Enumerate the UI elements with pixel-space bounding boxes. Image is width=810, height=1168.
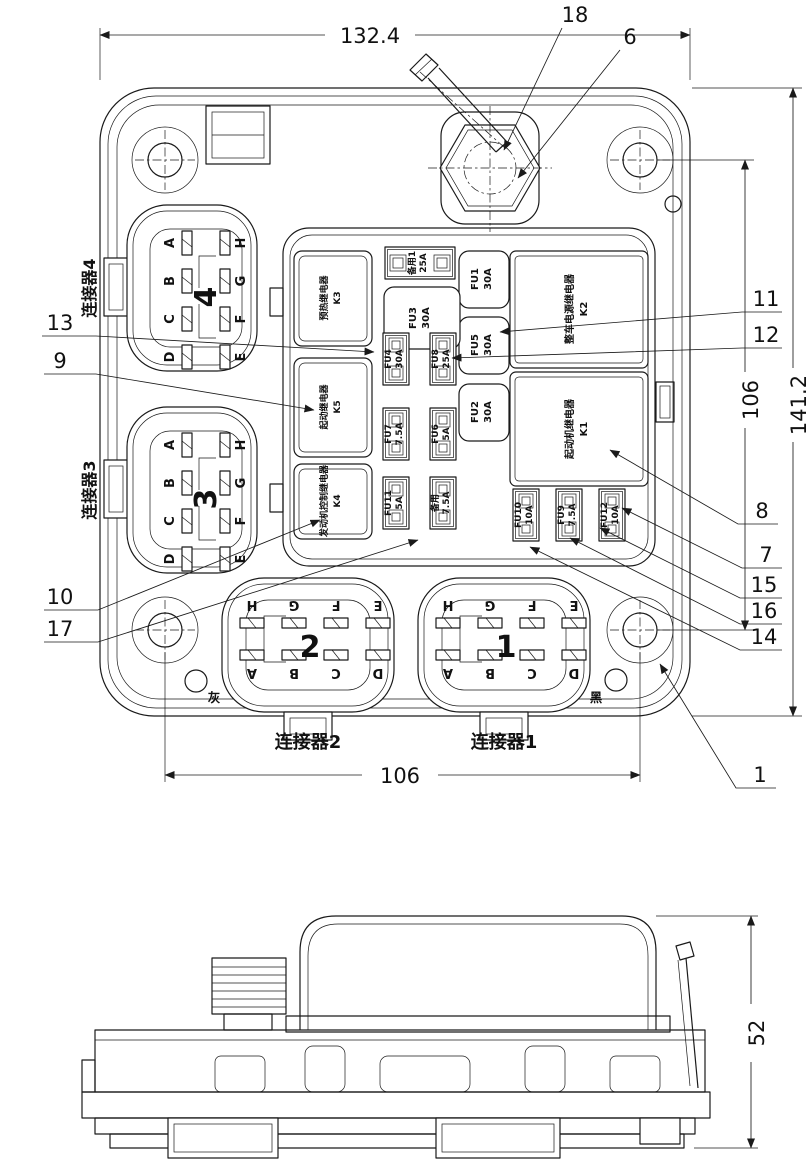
fuse-rating: 5A bbox=[395, 496, 405, 509]
pin-label: B bbox=[485, 665, 495, 680]
callout-11: 11 bbox=[753, 287, 780, 311]
fuse-fu9: FU9 7.5A bbox=[556, 489, 582, 541]
body-band bbox=[82, 1030, 705, 1092]
relay-k5: 起动继电器 K5 bbox=[294, 358, 372, 457]
pin-label: C bbox=[331, 665, 341, 680]
fuse-id: FU11 bbox=[384, 490, 394, 516]
callout-7: 7 bbox=[759, 543, 772, 567]
ear-hole bbox=[185, 670, 207, 692]
relay-k1: 起动机继电器 K1 bbox=[510, 372, 648, 486]
relay-name: 发动机控制继电器 bbox=[318, 464, 330, 538]
vent-block bbox=[206, 106, 270, 164]
fuse-rating: 10A bbox=[611, 505, 621, 525]
connector-label: 连接器3 bbox=[80, 460, 99, 519]
callout-1: 1 bbox=[753, 763, 766, 787]
pin-label: C bbox=[163, 516, 178, 526]
fuse-rating: 30A bbox=[483, 268, 494, 290]
pin-label: H bbox=[234, 238, 249, 249]
color-mark: 黑 bbox=[590, 690, 603, 705]
fuse-fu7: FU7 7.5A bbox=[383, 408, 409, 460]
connector-number: 1 bbox=[496, 630, 517, 665]
fuse-fu10: FU10 10A bbox=[513, 489, 539, 541]
fuse-id: FU12 bbox=[600, 502, 610, 528]
relay-name: 预热继电器 bbox=[318, 275, 330, 321]
relay-k2: 整车电源继电器 K2 bbox=[510, 251, 648, 368]
pin-label: A bbox=[163, 440, 178, 450]
callout-18: 18 bbox=[562, 3, 589, 27]
fuse-rating: 7.5A bbox=[442, 492, 452, 515]
top-view: 预热继电器 K3 起动继电器 K5 发动机控制继电器 K4 整车电源继电器 K2 bbox=[42, 3, 810, 788]
drawing-canvas: 预热继电器 K3 起动继电器 K5 发动机控制继电器 K4 整车电源继电器 K2 bbox=[0, 0, 810, 1168]
connector-1: H G F E A B C D 1 连接器1 黑 bbox=[418, 578, 603, 753]
pin-label: G bbox=[485, 597, 496, 612]
connector-label: 连接器4 bbox=[80, 258, 99, 317]
relay-name: 起动机继电器 bbox=[563, 398, 576, 460]
fuse-id: FU7 bbox=[384, 424, 394, 444]
fuse-fu6: FU6 5A bbox=[430, 408, 456, 460]
fuse-rating: 30A bbox=[483, 401, 494, 423]
fuse-id: FU9 bbox=[557, 505, 567, 525]
relay-k3: 预热继电器 K3 bbox=[294, 251, 372, 346]
fuse-fu12: FU12 10A bbox=[599, 489, 625, 541]
pin-label: F bbox=[528, 597, 537, 612]
fuse-rating: 10A bbox=[525, 505, 535, 525]
pin-label: A bbox=[443, 665, 453, 680]
dim-right-pitch: 106 bbox=[739, 380, 763, 420]
fuse-rating: 30A bbox=[395, 349, 405, 369]
pin-label: D bbox=[163, 351, 178, 362]
fin-bracket bbox=[212, 958, 286, 1030]
callout-13: 13 bbox=[47, 311, 74, 335]
relay-name: 整车电源继电器 bbox=[563, 273, 576, 345]
callout-8: 8 bbox=[755, 499, 768, 523]
pin-label: B bbox=[163, 478, 178, 488]
dim-top-width: 132.4 bbox=[340, 24, 400, 48]
relay-id: K4 bbox=[333, 494, 343, 507]
side-tab-inner bbox=[660, 386, 670, 418]
connector-number: 2 bbox=[300, 630, 321, 665]
pin-label: H bbox=[443, 597, 454, 612]
side-tab bbox=[656, 382, 674, 422]
callout-17: 17 bbox=[47, 617, 74, 641]
fuse-id: 备用 bbox=[429, 494, 441, 513]
relay-id: K5 bbox=[333, 400, 343, 413]
connector-2: H G F E A B C D 2 连接器2 灰 bbox=[208, 578, 394, 753]
fuse-id: FU1 bbox=[470, 268, 481, 290]
dim-side-height: 52 bbox=[656, 916, 769, 1148]
fuse-id: FU5 bbox=[470, 334, 481, 356]
pin-label: G bbox=[234, 478, 249, 489]
connector-label: 连接器1 bbox=[471, 731, 538, 753]
callout-9: 9 bbox=[53, 349, 66, 373]
pin-label: H bbox=[247, 597, 258, 612]
relay-id: K1 bbox=[579, 422, 590, 437]
pin-label: B bbox=[163, 276, 178, 286]
pin-label: C bbox=[163, 314, 178, 324]
latch bbox=[676, 942, 698, 1088]
callout-6: 6 bbox=[623, 25, 636, 49]
dim-side-height-text: 52 bbox=[745, 1020, 769, 1047]
connector-number: 4 bbox=[189, 287, 224, 308]
callout-14: 14 bbox=[751, 625, 778, 649]
fuse-fu1: FU1 30A bbox=[459, 251, 509, 308]
pin-label: C bbox=[527, 665, 537, 680]
pin-label: E bbox=[234, 555, 249, 564]
callout-12: 12 bbox=[753, 323, 780, 347]
fuse-spare-mid: 备用 7.5A bbox=[429, 477, 456, 529]
pin-label: A bbox=[163, 238, 178, 248]
callout-15: 15 bbox=[751, 573, 778, 597]
pin-label: H bbox=[234, 440, 249, 451]
cover-dome bbox=[300, 916, 656, 1030]
fuse-fu11: FU11 5A bbox=[383, 477, 409, 529]
fuse-rating: 5A bbox=[442, 427, 452, 440]
pin-label: F bbox=[234, 517, 249, 526]
fuse-id: FU10 bbox=[514, 502, 524, 528]
callout-10: 10 bbox=[47, 585, 74, 609]
fuse-id: FU3 bbox=[408, 307, 419, 329]
pin-label: D bbox=[163, 553, 178, 564]
fuse-fu4: FU4 30A bbox=[383, 333, 409, 385]
mounting-hole bbox=[135, 600, 195, 660]
fuse-id: FU4 bbox=[384, 349, 394, 369]
mounting-hole bbox=[135, 130, 195, 190]
fuse-id: FU6 bbox=[431, 424, 441, 444]
relay-id: K3 bbox=[333, 291, 343, 304]
fuse-fu5: FU5 30A bbox=[459, 317, 509, 374]
connector-4: A B C D H G F E 4 连接器4 bbox=[80, 205, 257, 371]
pin-label: G bbox=[289, 597, 300, 612]
pin-label: E bbox=[234, 353, 249, 362]
callout-16: 16 bbox=[751, 599, 778, 623]
pin-label: B bbox=[289, 665, 299, 680]
fuse-rating: 30A bbox=[421, 307, 432, 329]
pin-label: D bbox=[372, 665, 383, 680]
fuse-rating: 25A bbox=[442, 349, 452, 369]
fuse-rating: 30A bbox=[483, 334, 494, 356]
pin-label: A bbox=[247, 665, 257, 680]
pin-label: D bbox=[568, 665, 579, 680]
fuse-spare-top: 备用1 25A bbox=[385, 247, 455, 279]
dim-bottom-pitch: 106 bbox=[380, 764, 420, 788]
connector-number: 3 bbox=[189, 489, 224, 510]
pin-label: G bbox=[234, 276, 249, 287]
pin-label: E bbox=[374, 597, 383, 612]
fuse-rating: 25A bbox=[419, 253, 429, 273]
relay-k4: 发动机控制继电器 K4 bbox=[294, 464, 372, 539]
fuse-fu8: FU8 25A bbox=[430, 333, 456, 385]
relay-name: 起动继电器 bbox=[318, 384, 330, 431]
fuse-rating: 7.5A bbox=[395, 423, 405, 446]
base bbox=[82, 1092, 710, 1158]
fuse-fu2: FU2 30A bbox=[459, 384, 509, 441]
dim-overall-height: 141.2 bbox=[787, 375, 810, 435]
connector-label: 连接器2 bbox=[275, 731, 342, 753]
pin-label: F bbox=[332, 597, 341, 612]
fuse-id: FU8 bbox=[431, 349, 441, 369]
hex-plug bbox=[410, 54, 552, 232]
fuse-box-drawing: 预热继电器 K3 起动继电器 K5 发动机控制继电器 K4 整车电源继电器 K2 bbox=[0, 0, 810, 1168]
pin-label: F bbox=[234, 315, 249, 324]
relay-id: K2 bbox=[579, 302, 590, 317]
pin-label: E bbox=[570, 597, 579, 612]
side-view: 52 bbox=[82, 916, 769, 1158]
fuse-rating: 7.5A bbox=[568, 504, 578, 527]
fuse-id: 备用1 bbox=[406, 251, 418, 276]
fuse-id: FU2 bbox=[470, 401, 481, 423]
ear-hole bbox=[605, 669, 627, 691]
fuse-relay-panel: 预热继电器 K3 起动继电器 K5 发动机控制继电器 K4 整车电源继电器 K2 bbox=[270, 228, 655, 566]
connector-3: A B C D H G F E 3 连接器3 bbox=[80, 407, 257, 573]
color-mark: 灰 bbox=[208, 690, 221, 705]
